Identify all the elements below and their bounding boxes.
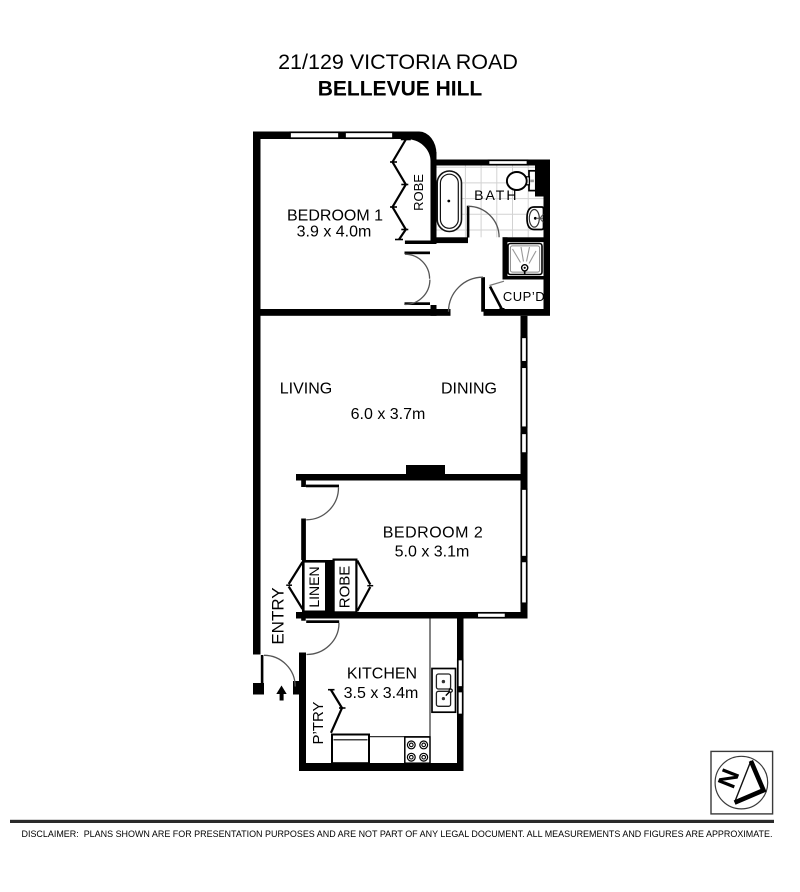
- svg-text:ROBE: ROBE: [411, 174, 426, 211]
- svg-text:3.5 x 3.4m: 3.5 x 3.4m: [344, 685, 419, 702]
- svg-text:P’TRY: P’TRY: [310, 701, 327, 744]
- svg-text:CUP’D: CUP’D: [503, 289, 545, 304]
- svg-text:LIVING: LIVING: [280, 381, 332, 398]
- svg-text:DINING: DINING: [441, 381, 497, 398]
- svg-text:3.9 x 4.0m: 3.9 x 4.0m: [297, 224, 372, 241]
- svg-text:5.0 x 3.1m: 5.0 x 3.1m: [395, 544, 470, 561]
- svg-text:ROBE: ROBE: [337, 566, 354, 609]
- svg-text:BELLEVUE HILL: BELLEVUE HILL: [318, 78, 483, 101]
- svg-text:DISCLAIMER: PLANS SHOWN ARE F: DISCLAIMER: PLANS SHOWN ARE FOR PRESENTA…: [22, 829, 773, 840]
- svg-text:BEDROOM 1: BEDROOM 1: [287, 208, 383, 225]
- svg-text:KITCHEN: KITCHEN: [347, 666, 417, 683]
- svg-text:21/129 VICTORIA ROAD: 21/129 VICTORIA ROAD: [278, 50, 518, 74]
- svg-text:LINEN: LINEN: [306, 566, 322, 607]
- svg-text:6.0 x 3.7m: 6.0 x 3.7m: [351, 406, 426, 423]
- svg-text:BATH: BATH: [474, 187, 518, 203]
- svg-text:ENTRY: ENTRY: [268, 587, 287, 644]
- svg-text:BEDROOM 2: BEDROOM 2: [383, 525, 484, 542]
